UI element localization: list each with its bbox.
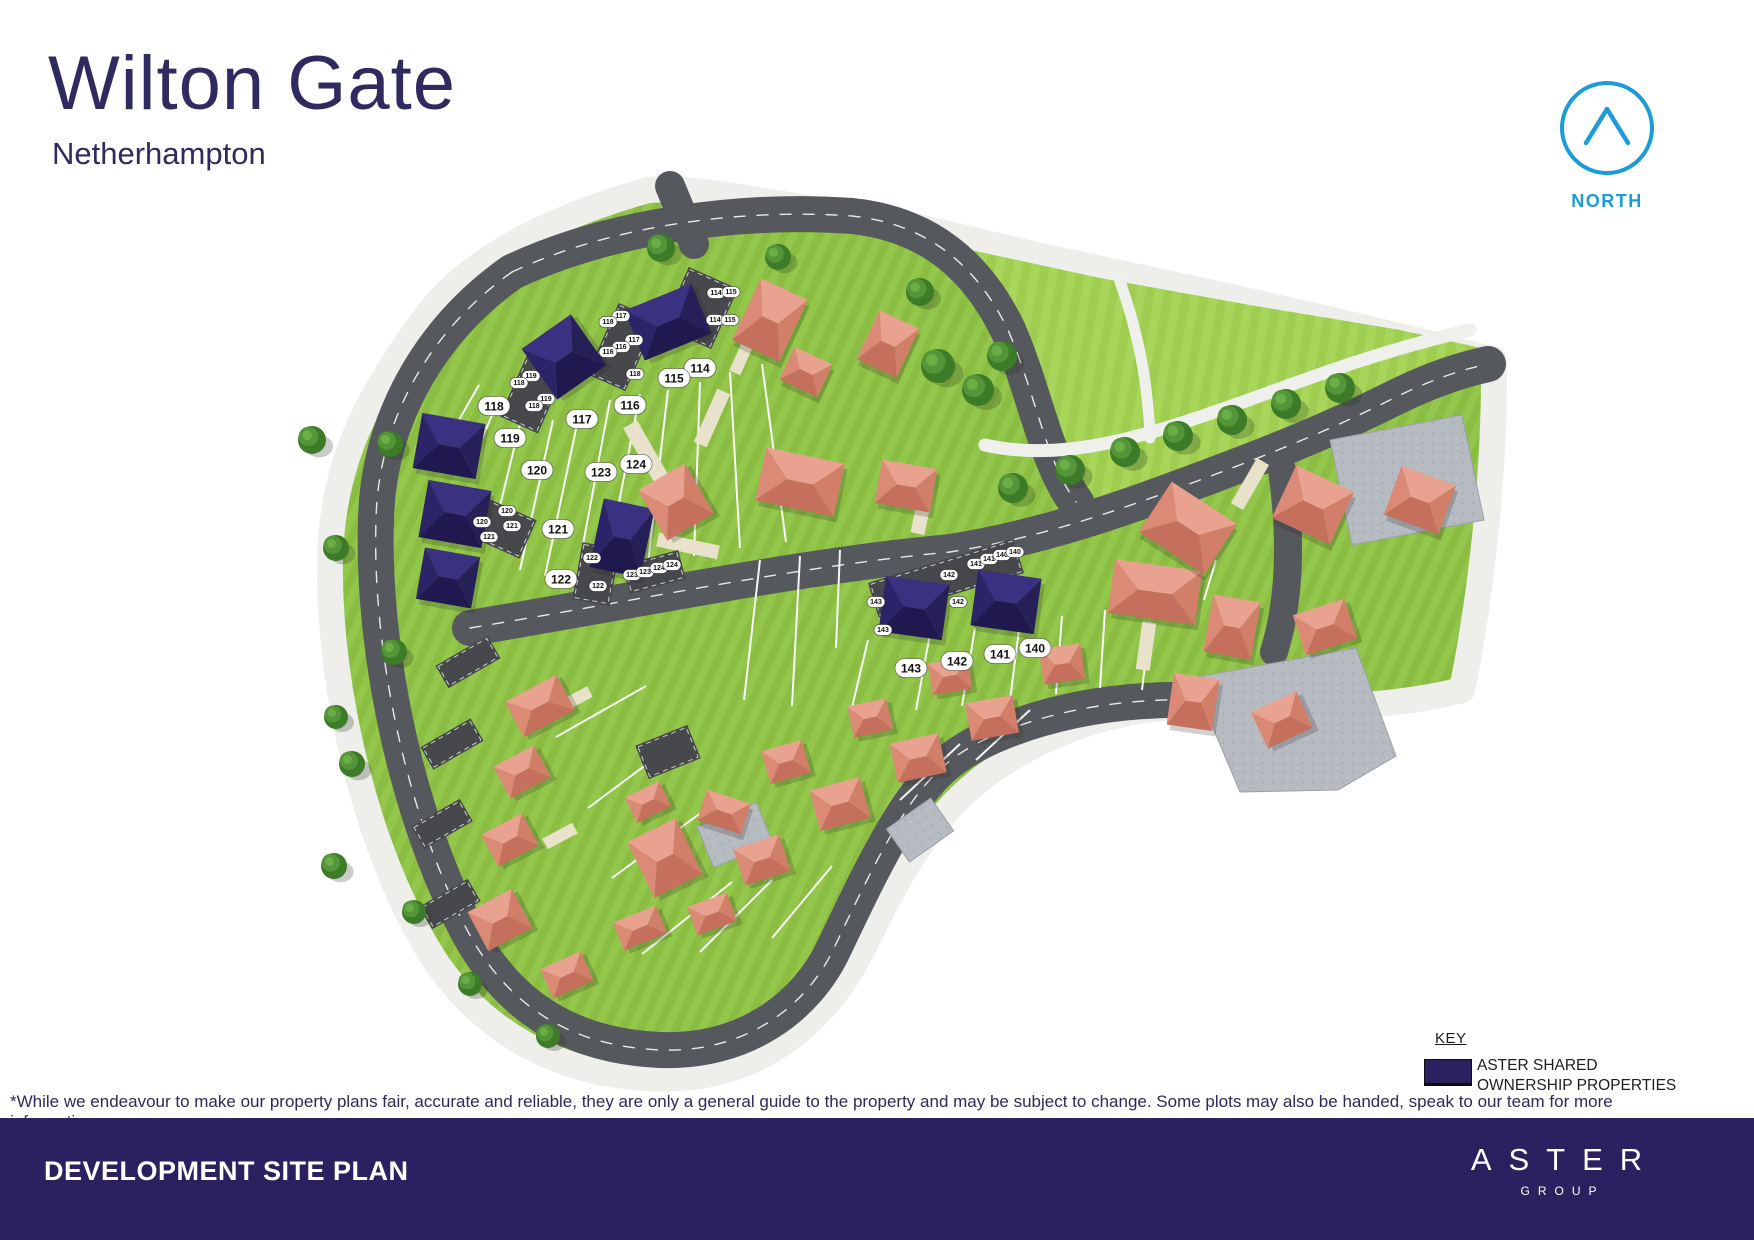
svg-text:120: 120	[476, 519, 488, 526]
svg-text:142: 142	[943, 572, 955, 579]
svg-text:118: 118	[629, 371, 640, 378]
svg-text:143: 143	[901, 662, 921, 676]
svg-text:118: 118	[602, 319, 613, 326]
svg-text:119: 119	[540, 396, 551, 403]
plot-badge: 120	[521, 461, 553, 480]
parking-bay-label: 143	[874, 625, 892, 636]
svg-text:114: 114	[710, 290, 721, 297]
svg-text:123: 123	[639, 569, 651, 576]
plot-badge: 143	[895, 659, 927, 678]
svg-text:122: 122	[586, 555, 598, 562]
svg-text:118: 118	[513, 380, 524, 387]
shared-ownership-house	[415, 548, 484, 615]
svg-text:120: 120	[527, 464, 547, 478]
tree-icon	[298, 426, 333, 457]
parking-bay-label: 121	[480, 532, 498, 543]
plot-badge: 117	[566, 410, 598, 429]
parking-bay-label: 115	[721, 315, 739, 326]
plot-badge: 115	[658, 369, 690, 388]
svg-text:140: 140	[1025, 642, 1045, 656]
svg-text:122: 122	[551, 573, 571, 587]
svg-text:115: 115	[664, 372, 684, 386]
key-legend: KEY ASTER SHARED OWNERSHIP PROPERTIES	[1424, 1030, 1676, 1096]
plot-badge: 116	[614, 396, 646, 415]
svg-text:114: 114	[709, 317, 720, 324]
plot-badge: 142	[941, 652, 973, 671]
page-subtitle: Netherhampton	[52, 136, 266, 172]
shared-ownership-house	[412, 413, 490, 485]
parking-bay-label: 118	[510, 378, 528, 389]
svg-text:119: 119	[500, 432, 520, 446]
svg-text:114: 114	[690, 362, 710, 376]
brand-sub: GROUP	[1445, 1184, 1680, 1198]
aster-group-logo: ASTER GROUP	[1440, 1142, 1680, 1198]
parking-bay-label: 118	[599, 317, 617, 328]
svg-text:117: 117	[572, 413, 592, 427]
svg-text:115: 115	[724, 317, 735, 324]
market-house	[874, 459, 942, 518]
plot-badge: 118	[478, 397, 510, 416]
north-label: NORTH	[1552, 191, 1662, 212]
svg-text:121: 121	[548, 523, 568, 537]
svg-text:143: 143	[870, 599, 882, 606]
parking-bay-label: 143	[867, 597, 885, 608]
svg-text:116: 116	[615, 344, 626, 351]
parking-bay-label: 122	[583, 553, 601, 564]
parking-bay-label: 118	[626, 369, 644, 380]
parking-bay-label: 124	[663, 560, 681, 571]
shared-ownership-swatch	[1424, 1059, 1472, 1086]
plot-badge: 140	[1019, 639, 1051, 658]
svg-text:116: 116	[602, 349, 613, 356]
svg-text:121: 121	[483, 534, 495, 541]
footer-title: DEVELOPMENT SITE PLAN	[44, 1156, 409, 1187]
svg-text:141: 141	[990, 648, 1010, 662]
parking-bay-label: 140	[1006, 547, 1024, 558]
svg-text:143: 143	[877, 627, 889, 634]
parking-bay-label: 120	[498, 506, 516, 517]
svg-text:117: 117	[628, 337, 639, 344]
svg-text:118: 118	[528, 403, 539, 410]
svg-text:141: 141	[970, 561, 982, 568]
svg-text:124: 124	[666, 562, 678, 569]
plot-badge: 123	[585, 463, 617, 482]
svg-text:120: 120	[501, 508, 513, 515]
svg-text:124: 124	[626, 458, 646, 472]
svg-text:117: 117	[615, 313, 626, 320]
brand-name: ASTER	[1450, 1142, 1680, 1178]
north-indicator: NORTH	[1552, 78, 1662, 212]
plot-badge: 122	[545, 570, 577, 589]
shared-ownership-house	[970, 570, 1046, 640]
parking-bay-label: 122	[589, 581, 607, 592]
svg-text:140: 140	[1009, 549, 1021, 556]
svg-text:118: 118	[484, 400, 504, 414]
plot-badge: 124	[620, 455, 652, 474]
parking-bay-label: 115	[722, 287, 740, 298]
svg-text:121: 121	[506, 523, 518, 530]
svg-text:142: 142	[952, 599, 964, 606]
page-title: Wilton Gate	[48, 40, 456, 127]
svg-text:119: 119	[525, 373, 536, 380]
parking-bay-label: 120	[473, 517, 491, 528]
market-house	[965, 694, 1024, 745]
parking-bay-label: 116	[599, 347, 617, 358]
key-label: ASTER SHARED OWNERSHIP PROPERTIES	[1477, 1056, 1676, 1096]
parking-bay-label: 142	[940, 570, 958, 581]
svg-text:142: 142	[947, 655, 967, 669]
parking-bay-label: 121	[503, 521, 521, 532]
svg-text:122: 122	[592, 583, 604, 590]
plot-badge: 141	[984, 645, 1016, 664]
svg-text:115: 115	[725, 289, 736, 296]
tree-icon	[321, 853, 354, 882]
plot-badge: 121	[542, 520, 574, 539]
svg-text:116: 116	[620, 399, 640, 413]
parking-bay-label: 142	[949, 597, 967, 608]
key-title: KEY	[1435, 1030, 1676, 1047]
market-house	[1166, 673, 1223, 736]
north-arrow-icon	[1557, 78, 1657, 178]
parking-bay-label: 118	[525, 401, 543, 412]
svg-text:123: 123	[591, 466, 611, 480]
plot-badge: 119	[494, 429, 526, 448]
market-house	[1202, 594, 1264, 665]
